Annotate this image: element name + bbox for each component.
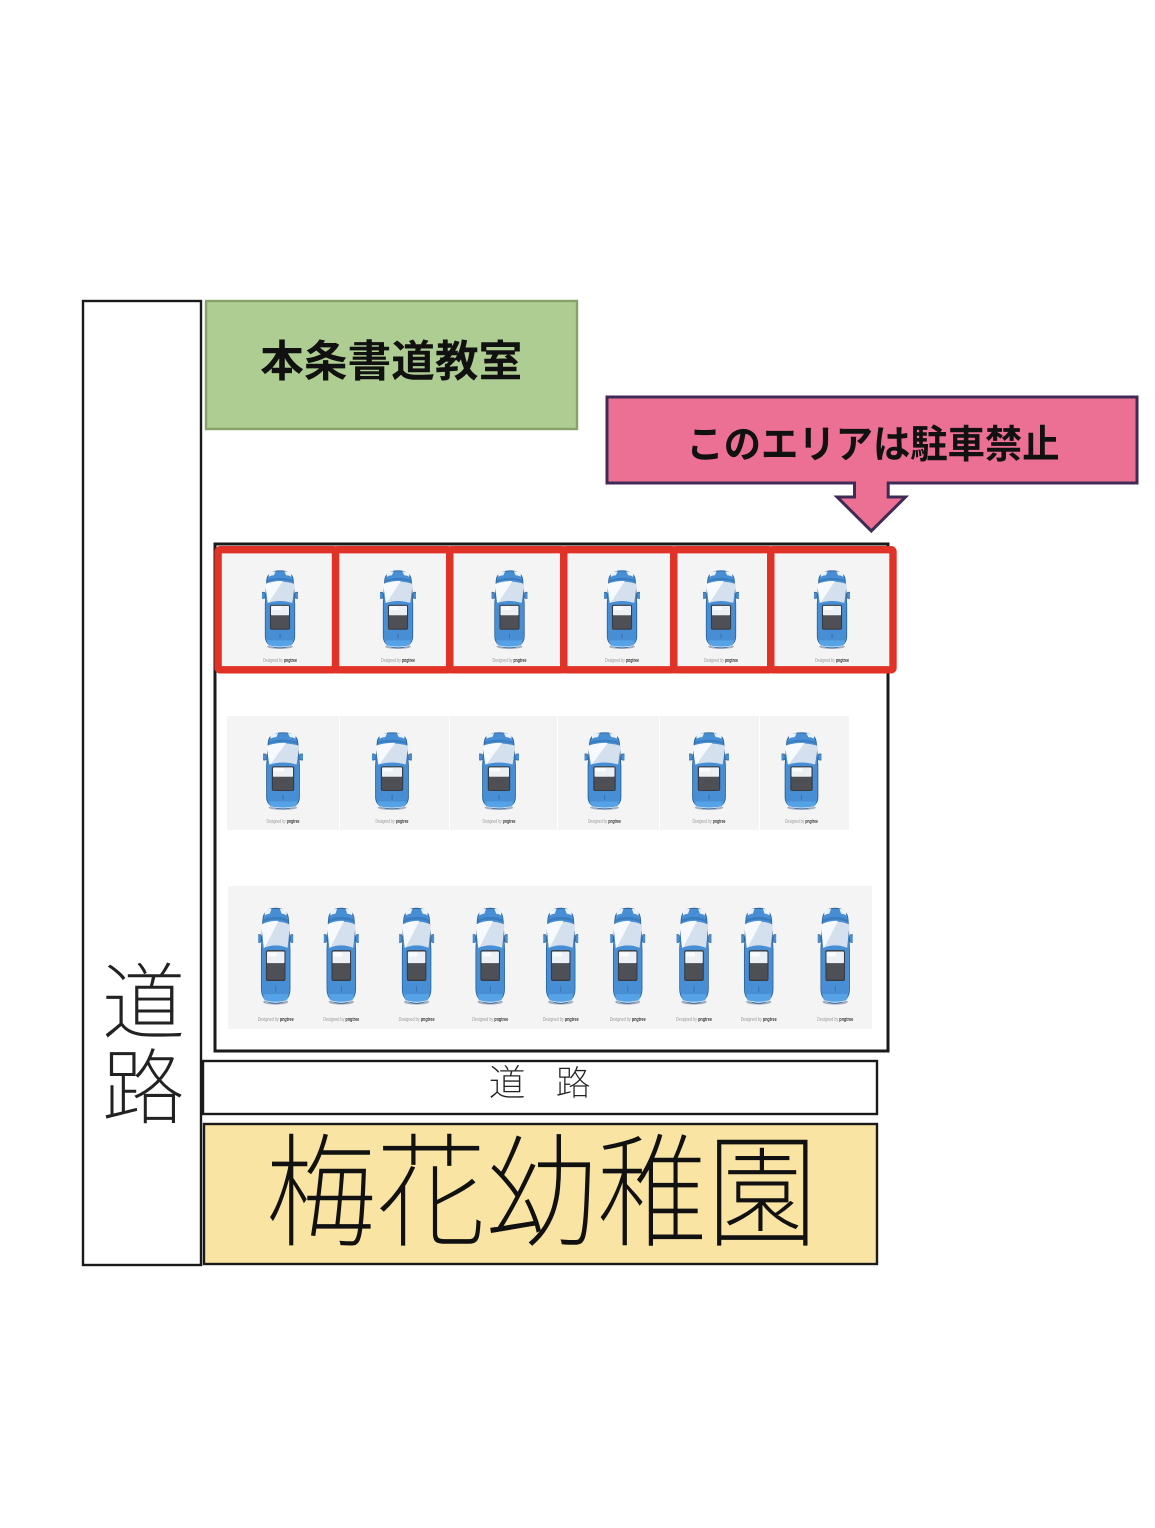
svg-text:Designed by pngtree: Designed by pngtree xyxy=(258,1017,294,1023)
svg-text:Designed by pngtree: Designed by pngtree xyxy=(676,1017,712,1023)
svg-text:Designed by pngtree: Designed by pngtree xyxy=(610,1017,646,1023)
svg-text:Designed by pngtree: Designed by pngtree xyxy=(543,1017,579,1023)
svg-text:Designed by pngtree: Designed by pngtree xyxy=(605,658,639,664)
svg-text:Designed by pngtree: Designed by pngtree xyxy=(817,1017,853,1023)
svg-text:Designed by pngtree: Designed by pngtree xyxy=(704,658,738,664)
svg-text:Designed by pngtree: Designed by pngtree xyxy=(376,819,409,825)
svg-text:Designed by pngtree: Designed by pngtree xyxy=(785,819,818,825)
svg-text:Designed by pngtree: Designed by pngtree xyxy=(741,1017,777,1023)
svg-text:Designed by pngtree: Designed by pngtree xyxy=(483,819,516,825)
svg-text:Designed by pngtree: Designed by pngtree xyxy=(267,819,300,825)
svg-text:Designed by pngtree: Designed by pngtree xyxy=(493,658,527,664)
svg-text:Designed by pngtree: Designed by pngtree xyxy=(815,658,849,664)
svg-text:Designed by pngtree: Designed by pngtree xyxy=(588,819,621,825)
svg-text:Designed by pngtree: Designed by pngtree xyxy=(381,658,415,664)
svg-text:Designed by pngtree: Designed by pngtree xyxy=(263,658,297,664)
svg-text:Designed by pngtree: Designed by pngtree xyxy=(399,1017,435,1023)
svg-text:Designed by pngtree: Designed by pngtree xyxy=(323,1017,359,1023)
svg-text:Designed by pngtree: Designed by pngtree xyxy=(472,1017,508,1023)
svg-text:Designed by pngtree: Designed by pngtree xyxy=(693,819,726,825)
